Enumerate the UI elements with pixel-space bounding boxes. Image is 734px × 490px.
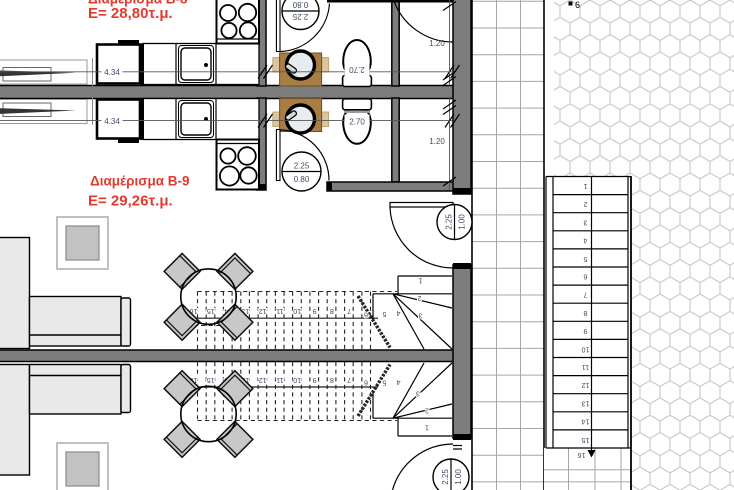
- svg-text:6: 6: [364, 379, 368, 388]
- svg-text:2: 2: [418, 294, 422, 303]
- svg-text:15: 15: [207, 376, 215, 385]
- svg-text:0.80: 0.80: [294, 175, 310, 184]
- svg-text:6: 6: [575, 0, 580, 10]
- svg-text:1: 1: [425, 424, 429, 433]
- svg-text:7: 7: [347, 376, 351, 385]
- svg-text:1: 1: [419, 277, 423, 286]
- svg-text:8: 8: [330, 307, 334, 316]
- svg-text:9: 9: [313, 307, 317, 316]
- svg-text:14: 14: [582, 418, 590, 427]
- svg-text:0.80: 0.80: [292, 0, 308, 9]
- svg-text:10: 10: [293, 307, 301, 316]
- svg-text:2.25: 2.25: [445, 214, 454, 230]
- svg-text:2.25: 2.25: [294, 162, 310, 171]
- svg-text:9: 9: [584, 327, 588, 336]
- svg-text:7: 7: [584, 291, 588, 300]
- svg-text:12: 12: [259, 307, 267, 316]
- svg-text:15: 15: [582, 436, 590, 445]
- svg-text:5: 5: [383, 379, 387, 388]
- svg-text:7: 7: [347, 307, 351, 316]
- svg-text:3: 3: [584, 218, 588, 227]
- svg-text:2.70: 2.70: [349, 65, 365, 74]
- svg-text:2: 2: [425, 407, 429, 416]
- svg-text:15: 15: [207, 307, 215, 316]
- svg-text:10: 10: [293, 376, 301, 385]
- svg-text:11: 11: [276, 307, 283, 316]
- svg-text:1.00: 1.00: [458, 214, 467, 230]
- svg-text:4: 4: [397, 378, 401, 387]
- svg-text:2.25: 2.25: [292, 12, 308, 21]
- svg-text:Ε= 28,80τ.μ.: Ε= 28,80τ.μ.: [88, 5, 173, 22]
- svg-text:1.20: 1.20: [429, 39, 445, 48]
- svg-text:12: 12: [582, 381, 590, 390]
- svg-text:1.20: 1.20: [429, 137, 445, 146]
- svg-text:11: 11: [582, 363, 589, 372]
- svg-text:2.25: 2.25: [441, 469, 450, 485]
- svg-text:11: 11: [276, 376, 283, 385]
- svg-text:1: 1: [584, 182, 588, 191]
- svg-text:3: 3: [416, 390, 420, 399]
- svg-text:4: 4: [397, 309, 401, 318]
- svg-text:4.34: 4.34: [104, 68, 120, 77]
- svg-text:4.34: 4.34: [104, 117, 120, 126]
- svg-text:6: 6: [364, 311, 368, 320]
- svg-text:13: 13: [582, 399, 590, 408]
- svg-text:2: 2: [584, 200, 588, 209]
- svg-text:5: 5: [584, 255, 588, 264]
- svg-text:6: 6: [584, 273, 588, 282]
- svg-text:Διαμέρισμα Β-9: Διαμέρισμα Β-9: [90, 174, 190, 189]
- svg-text:Ε= 29,26τ.μ.: Ε= 29,26τ.μ.: [88, 193, 173, 210]
- svg-text:1.00: 1.00: [454, 469, 463, 485]
- svg-text:5: 5: [383, 310, 387, 319]
- svg-text:2.70: 2.70: [349, 118, 365, 127]
- svg-text:8: 8: [330, 376, 334, 385]
- svg-text:3: 3: [419, 312, 423, 321]
- svg-text:9: 9: [313, 376, 317, 385]
- svg-text:16: 16: [578, 451, 586, 460]
- svg-text:4: 4: [584, 237, 588, 246]
- svg-text:10: 10: [582, 345, 590, 354]
- svg-text:8: 8: [584, 309, 588, 318]
- svg-text:12: 12: [259, 376, 267, 385]
